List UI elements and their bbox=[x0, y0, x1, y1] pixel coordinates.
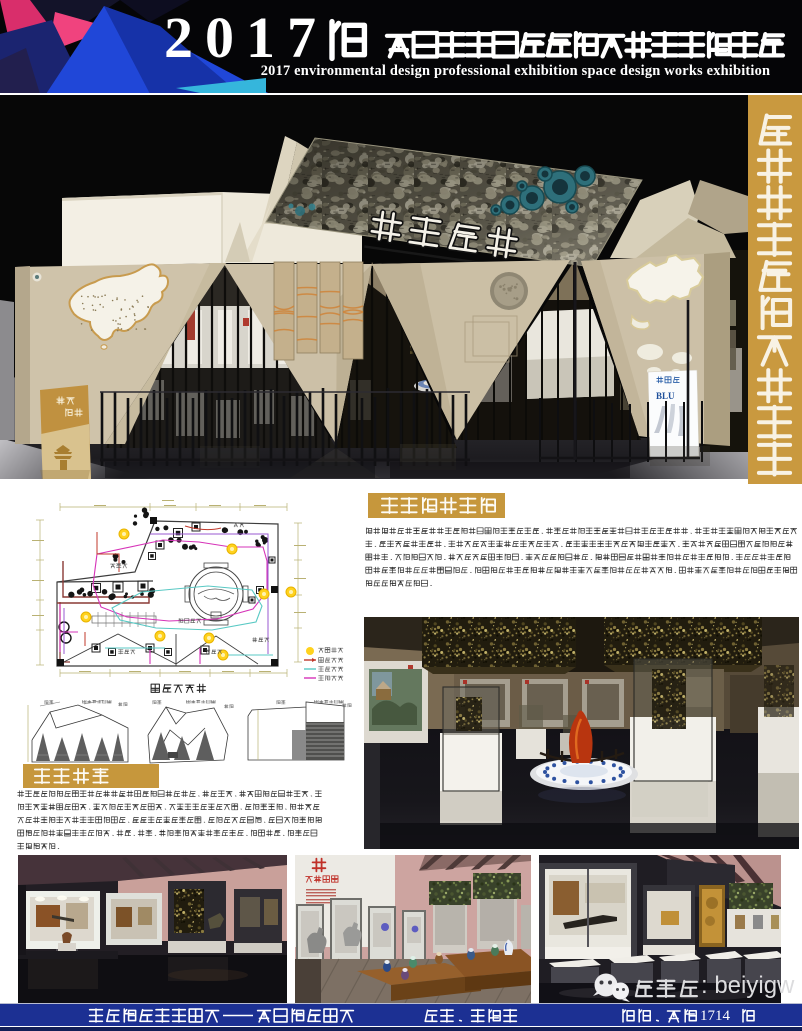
svg-text:BLU: BLU bbox=[656, 391, 675, 401]
